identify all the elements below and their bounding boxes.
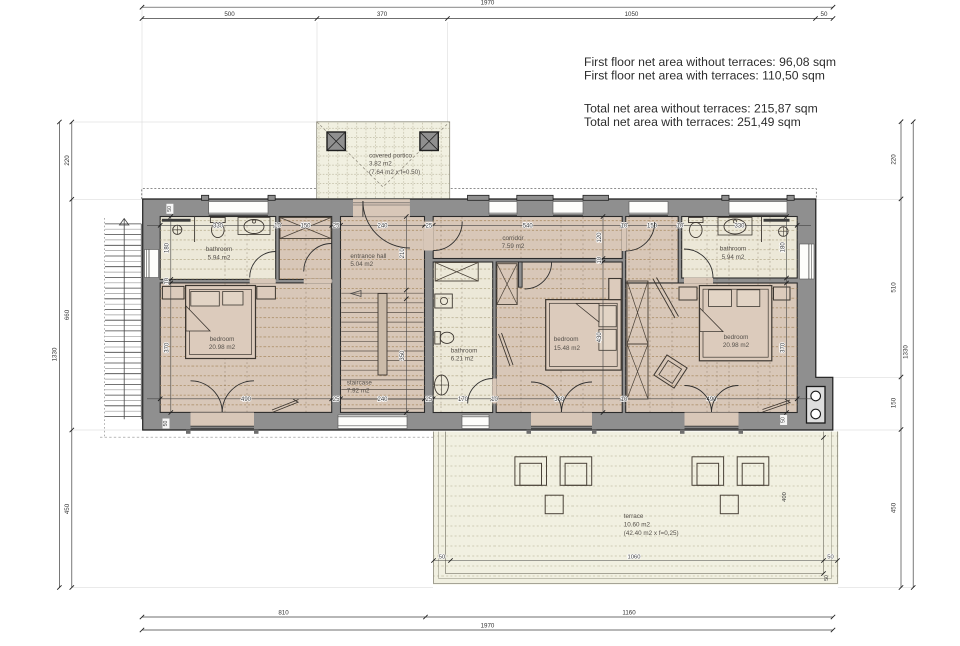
svg-text:150: 150 [300, 224, 311, 230]
svg-text:150: 150 [891, 397, 898, 408]
svg-text:bedroom: bedroom [724, 334, 749, 341]
svg-text:370: 370 [165, 342, 171, 353]
svg-text:1970: 1970 [481, 0, 495, 7]
svg-text:covered portico: covered portico [369, 153, 413, 160]
svg-text:50: 50 [439, 554, 445, 560]
svg-text:240: 240 [377, 397, 388, 403]
svg-text:10.60 m2: 10.60 m2 [624, 522, 651, 529]
svg-text:entrance hall: entrance hall [350, 253, 386, 260]
svg-text:220: 220 [891, 154, 898, 165]
svg-text:25: 25 [333, 224, 340, 230]
svg-text:660: 660 [64, 309, 71, 320]
svg-text:150: 150 [647, 224, 658, 230]
svg-text:330: 330 [734, 224, 745, 230]
svg-text:370: 370 [377, 11, 388, 18]
svg-text:510: 510 [891, 282, 898, 293]
svg-text:10: 10 [274, 224, 281, 230]
svg-text:170: 170 [458, 397, 469, 403]
svg-text:210: 210 [400, 248, 406, 259]
svg-text:490: 490 [241, 397, 252, 403]
svg-text:430: 430 [597, 332, 603, 343]
svg-text:10: 10 [677, 224, 684, 230]
svg-text:(42.40 m2 x f=0,25): (42.40 m2 x f=0,25) [624, 530, 679, 537]
svg-text:First floor net area with terr: First floor net area with terraces: 110,… [584, 68, 825, 82]
svg-text:20.98 m2: 20.98 m2 [209, 344, 236, 351]
svg-text:staircase: staircase [347, 380, 373, 387]
svg-text:terrace: terrace [624, 513, 644, 520]
svg-text:330: 330 [213, 224, 224, 230]
svg-text:1050: 1050 [625, 11, 639, 18]
svg-text:bedroom: bedroom [210, 336, 235, 343]
svg-text:500: 500 [224, 11, 235, 18]
svg-text:bathroom: bathroom [720, 246, 747, 253]
svg-text:370: 370 [780, 342, 786, 353]
svg-text:25: 25 [333, 397, 340, 403]
svg-text:450: 450 [891, 502, 898, 513]
svg-text:50: 50 [821, 11, 828, 18]
svg-text:540: 540 [523, 224, 534, 230]
svg-text:810: 810 [278, 610, 289, 617]
svg-text:7.59 m2: 7.59 m2 [502, 243, 525, 250]
svg-text:50: 50 [781, 417, 787, 423]
svg-text:350: 350 [400, 350, 406, 361]
svg-text:(7.64 m2 x f=0.50): (7.64 m2 x f=0.50) [369, 169, 420, 176]
svg-text:7.92 m2: 7.92 m2 [347, 388, 370, 395]
svg-text:10: 10 [165, 277, 171, 284]
svg-text:180: 180 [165, 242, 171, 253]
svg-text:1330: 1330 [51, 347, 58, 361]
svg-text:25: 25 [426, 397, 433, 403]
svg-text:50: 50 [167, 206, 173, 212]
svg-text:corridor: corridor [502, 235, 523, 242]
svg-text:1060: 1060 [628, 554, 641, 560]
svg-text:bedroom: bedroom [554, 336, 579, 343]
svg-text:450: 450 [64, 503, 71, 514]
svg-text:20.98 m2: 20.98 m2 [723, 342, 750, 349]
svg-text:First floor net area without t: First floor net area without terraces: 9… [584, 55, 836, 69]
svg-text:bathroom: bathroom [206, 246, 233, 253]
svg-text:120: 120 [597, 232, 603, 243]
svg-text:50: 50 [163, 421, 169, 427]
svg-text:6.21 m2: 6.21 m2 [451, 356, 474, 363]
svg-text:5.94 m2: 5.94 m2 [208, 255, 231, 262]
svg-text:10: 10 [597, 256, 603, 263]
svg-text:Total net area with terraces:: Total net area with terraces: 251,49 sqm [584, 115, 801, 129]
svg-text:1160: 1160 [622, 610, 636, 617]
svg-text:240: 240 [377, 224, 388, 230]
svg-text:15.48 m2: 15.48 m2 [554, 345, 581, 352]
svg-text:1970: 1970 [481, 623, 495, 630]
svg-text:5.94 m2: 5.94 m2 [722, 254, 745, 261]
svg-text:25: 25 [426, 224, 433, 230]
svg-text:bathroom: bathroom [451, 348, 478, 355]
svg-text:5.04 m2: 5.04 m2 [350, 261, 373, 268]
svg-text:Total net area without terrace: Total net area without terraces: 215,87 … [584, 102, 818, 116]
svg-text:3.82 m2: 3.82 m2 [369, 161, 392, 168]
svg-text:10: 10 [621, 224, 628, 230]
svg-text:220: 220 [64, 155, 71, 166]
svg-text:10: 10 [621, 397, 628, 403]
svg-text:400: 400 [782, 492, 788, 502]
svg-text:180: 180 [780, 242, 786, 253]
svg-text:1330: 1330 [903, 345, 910, 359]
svg-text:50: 50 [824, 575, 830, 581]
svg-text:10: 10 [491, 397, 498, 403]
svg-text:50: 50 [827, 554, 833, 560]
